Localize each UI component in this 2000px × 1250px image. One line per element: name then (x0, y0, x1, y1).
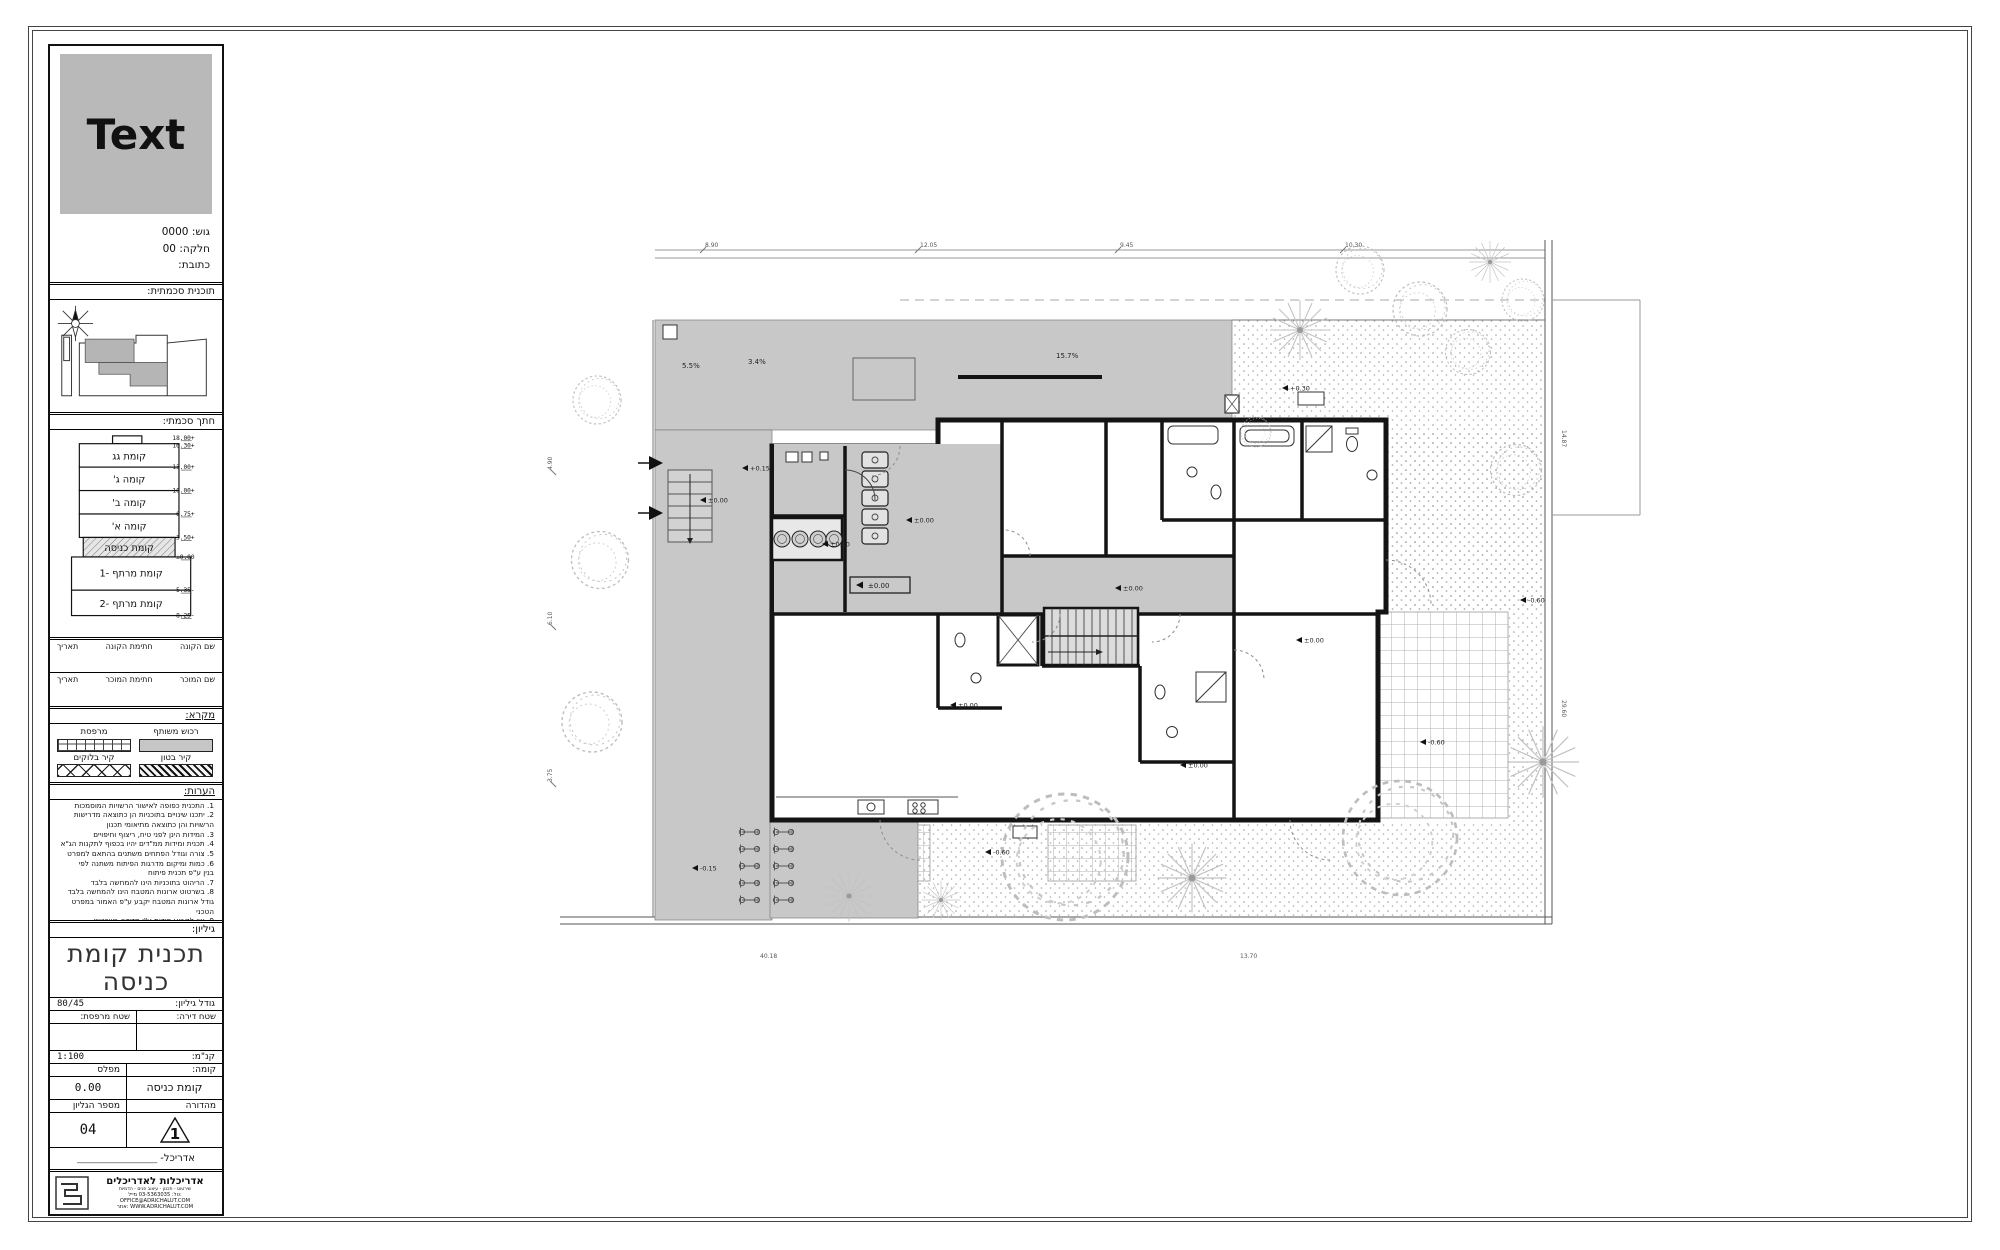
floor-plan: [data-name="storage-lockers"] rect{fill:… (545, 228, 1655, 1018)
firm-name: אדריכלות לאדריכלים (93, 1176, 217, 1187)
svg-text:10.30: 10.30 (1345, 242, 1362, 249)
sink (1167, 727, 1178, 738)
key-plan (50, 300, 222, 412)
floor-label: קומה ב' (112, 498, 146, 509)
svg-text:29.60: 29.60 (1560, 700, 1567, 717)
sheet-size-label: גודל גיליון: (175, 999, 215, 1009)
floor-label: קומה א' (112, 522, 147, 533)
firm-logo-block: Text (50, 46, 222, 222)
sink (1367, 470, 1377, 480)
scale-value: 1:100 (57, 1052, 84, 1062)
edition-label: מהדורה (126, 1100, 222, 1112)
sheet-header: גיליון: (50, 920, 222, 938)
buyer-name-label: שם הקונה (180, 642, 215, 672)
balcony-area-label: שטח מרפסת: (50, 1011, 136, 1023)
shared-swatch (139, 739, 213, 752)
notes-list: 1. התכנית כפופה לאישור הרשויות המוסמכות2… (50, 800, 222, 920)
floor-level-header: קומה: מפלס (50, 1063, 222, 1076)
svg-text:15.7%: 15.7% (1056, 352, 1079, 360)
svg-text:±0.00: ±0.00 (1188, 762, 1208, 770)
svg-text:±0.00: ±0.00 (830, 541, 850, 549)
key-plan-drawing (52, 302, 220, 407)
sink (971, 673, 981, 683)
svg-text:12.05: 12.05 (920, 242, 937, 249)
concrete-swatch (139, 764, 213, 777)
logo-placeholder: Text (60, 54, 212, 214)
apt-area-label: שטח דירה: (136, 1011, 222, 1023)
svg-text:±0.00: ±0.00 (958, 702, 978, 710)
svg-text:±0.00: ±0.00 (1304, 637, 1324, 645)
svg-text:-0.60: -0.60 (1528, 597, 1545, 605)
svg-text:±0.00: ±0.00 (914, 517, 934, 525)
drawing-sheet: Text גוש: 0000 חלקה: 00 כתובת: תוכנית סכ… (0, 0, 2000, 1250)
compass-icon (58, 306, 93, 341)
level-label: מפלס (50, 1064, 126, 1076)
address-line: כתובת: (54, 257, 210, 273)
buyer-signature-row: שם הקונה חתימת הקונה תאריך (50, 640, 222, 673)
logo-text: Text (87, 110, 186, 159)
svg-text:8.90: 8.90 (705, 242, 719, 249)
floor-plan-area: [data-name="storage-lockers"] rect{fill:… (545, 228, 1655, 1018)
floor-label: קומת כניסה (104, 543, 154, 554)
balcony-swatch (57, 739, 131, 752)
balcony-area-value (50, 1024, 136, 1050)
sheet-no-label: מספר הגליון (50, 1100, 126, 1112)
floor-label: קומה: (126, 1064, 222, 1076)
firm-website: אתר: WWW.ADRICHALUT.COM (93, 1204, 217, 1210)
areas-value-row (50, 1023, 222, 1050)
floor-value: קומת כניסה (126, 1077, 222, 1099)
architect-row: אדריכל- ________________ (50, 1147, 222, 1169)
edition-values: 1 04 (50, 1112, 222, 1147)
sink (1187, 467, 1197, 477)
svg-text:6.10: 6.10 (547, 611, 554, 625)
date-label: תאריך (57, 675, 78, 706)
svg-text:4.90: 4.90 (547, 456, 554, 470)
svg-text:13.70: 13.70 (1240, 953, 1257, 960)
seller-name-label: שם המוכר (180, 675, 215, 706)
svg-text:5.5%: 5.5% (682, 362, 700, 370)
floor-label: קומה ג' (113, 475, 145, 486)
sheet-no-value: 04 (50, 1122, 126, 1138)
schematic-section: קומת גג קומה ג' קומה ב' קומה א' קומת כני… (50, 430, 222, 637)
floor-label: קומת מרתף -1 (99, 569, 162, 580)
section-diagram: קומת גג קומה ג' קומה ב' קומה א' קומת כני… (52, 430, 220, 633)
signature-block: שם הקונה חתימת הקונה תאריך שם המוכר חתימ… (50, 637, 222, 706)
svg-text:40.18: 40.18 (760, 953, 777, 960)
firm-phone-email: טל: 03-5363035 מייל: OFFICE@ADRICHALUT.C… (93, 1192, 217, 1204)
architect-label: אדריכל- (160, 1153, 195, 1164)
trash-room (772, 518, 842, 560)
buyer-sign-label: חתימת הקונה (106, 642, 153, 672)
firm-footer: אדריכלות לאדריכלים שירטוט - תכנון - עיצו… (50, 1169, 222, 1214)
section-header: חתך סכמתי: (50, 412, 222, 430)
legend-header: מקרא: (50, 706, 222, 724)
toilet (1155, 685, 1165, 699)
road-lines (655, 250, 1545, 300)
svg-text:-0.60: -0.60 (993, 849, 1010, 857)
toilet (955, 633, 965, 647)
legend-item-concrete: קיר בטון (139, 753, 213, 777)
sheet-size-value: 80/45 (57, 999, 84, 1009)
sheet-size-row: גודל גיליון: 80/45 (50, 997, 222, 1010)
svg-text:-0.15: -0.15 (700, 865, 717, 873)
blocks-swatch (57, 764, 131, 777)
svg-text:9.45: 9.45 (1120, 242, 1134, 249)
date-label: תאריך (57, 642, 78, 672)
floor-level-values: קומת כניסה 0.00 (50, 1076, 222, 1099)
apt-area-value (136, 1024, 222, 1050)
helka-line: חלקה: 00 (54, 241, 210, 257)
svg-text:+0.15: +0.15 (750, 465, 770, 473)
svg-text:±0.00: ±0.00 (1123, 585, 1143, 593)
legend-item-shared: רכוש משותף (139, 727, 213, 751)
title-block-sidebar: Text גוש: 0000 חלקה: 00 כתובת: תוכנית סכ… (48, 44, 224, 1216)
svg-text:-0.60: -0.60 (1428, 739, 1445, 747)
electrical-room (786, 452, 828, 462)
floor-label: קומת גג (112, 452, 146, 463)
staircase (1044, 608, 1138, 665)
entrance-steps (668, 470, 712, 544)
legend-item-balcony: מרפסת (57, 727, 131, 751)
parcel-info: גוש: 0000 חלקה: 00 כתובת: (50, 222, 222, 282)
lobby-level-box: ±0.00 (850, 577, 910, 593)
svg-text:14.87: 14.87 (1560, 430, 1567, 447)
floor-label: קומת מרתף -2 (99, 599, 162, 610)
scale-row: קנ"מ: 1:100 (50, 1050, 222, 1063)
architect-line: ________________ (77, 1153, 157, 1164)
lobby-level-text: ±0.00 (868, 582, 889, 590)
seller-sign-label: חתימת המוכר (106, 675, 153, 706)
areas-header-row: שטח דירה: שטח מרפסת: (50, 1010, 222, 1023)
seller-signature-row: שם המוכר חתימת המוכר תאריך (50, 673, 222, 706)
key-plan-buildings (85, 339, 167, 386)
level-value: 0.00 (50, 1077, 126, 1099)
svg-text:3.4%: 3.4% (748, 358, 766, 366)
garden-table (1298, 392, 1324, 405)
svg-text:+0.30: +0.30 (1290, 385, 1310, 393)
bathtub (1168, 426, 1218, 444)
sheet-title: תכנית קומת כניסה (50, 938, 222, 998)
legend-item-blocks: קיר בלוקים (57, 753, 131, 777)
gush-line: גוש: 0000 (54, 224, 210, 240)
notes-header: הערות: (50, 782, 222, 800)
toilet (1211, 485, 1221, 499)
svg-text:±0.00: ±0.00 (708, 497, 728, 505)
keyplan-header: תוכנית סכמתית: (50, 282, 222, 300)
legend: רכוש משותף מרפסת קיר בטון קיר בלוקים (50, 724, 222, 781)
revision-triangle-icon: 1 (126, 1113, 222, 1147)
firm-logo-icon (55, 1176, 89, 1210)
driveway-ramp (655, 320, 1232, 430)
edition-header: מהדורה מספר הגליון (50, 1099, 222, 1112)
toilet (1347, 437, 1358, 452)
scale-label: קנ"מ: (192, 1052, 215, 1062)
edition-number: 1 (169, 1125, 179, 1143)
svg-text:3.75: 3.75 (547, 768, 554, 782)
firm-contact: אדריכלות לאדריכלים שירטוט - תכנון - עיצו… (93, 1176, 217, 1210)
